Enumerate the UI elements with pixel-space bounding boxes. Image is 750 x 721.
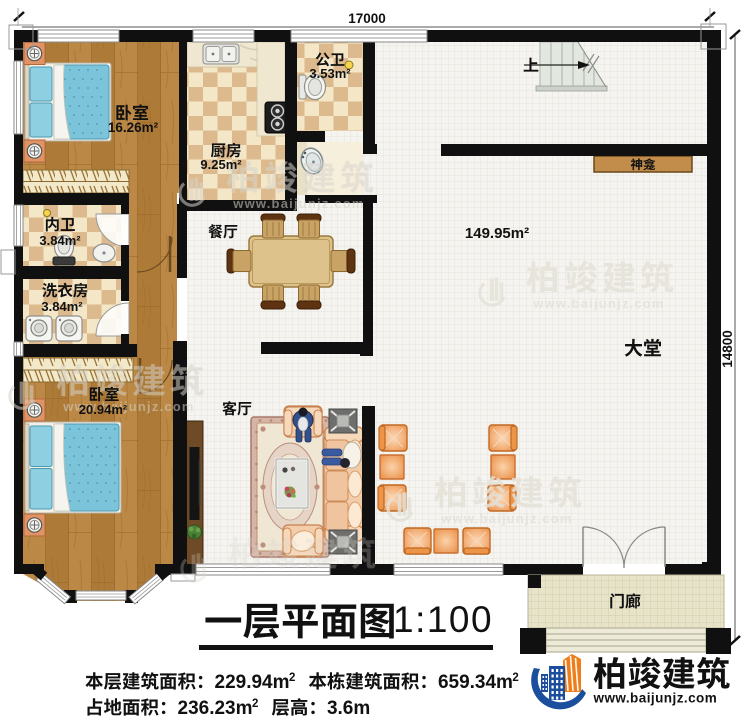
svg-text:20.94m²: 20.94m²	[79, 402, 128, 417]
svg-text:3.84m²: 3.84m²	[41, 299, 83, 314]
svg-text:14800: 14800	[720, 330, 735, 368]
svg-text:236.23m: 236.23m	[178, 698, 253, 719]
svg-text:www.baijunjz.com: www.baijunjz.com	[440, 511, 572, 526]
svg-text:2: 2	[252, 698, 258, 710]
svg-text:www.baijunjz.com: www.baijunjz.com	[593, 691, 718, 706]
svg-text:3.84m²: 3.84m²	[39, 233, 81, 248]
svg-text:16.26m²: 16.26m²	[108, 120, 159, 135]
svg-text:3.6m: 3.6m	[327, 698, 370, 719]
svg-text:1:100: 1:100	[393, 599, 493, 640]
svg-text:659.34m: 659.34m	[438, 672, 513, 693]
svg-text:www.baijunjz.com: www.baijunjz.com	[232, 196, 364, 211]
svg-text:2: 2	[512, 672, 518, 684]
svg-text:229.94m: 229.94m	[215, 672, 290, 693]
svg-text:149.95m²: 149.95m²	[465, 225, 529, 242]
svg-text:www.baijunjz.com: www.baijunjz.com	[532, 296, 664, 311]
svg-text:17000: 17000	[348, 11, 386, 26]
svg-text:3.53m²: 3.53m²	[309, 66, 351, 81]
svg-text:9.25m²: 9.25m²	[200, 157, 242, 172]
svg-text:2: 2	[289, 672, 295, 684]
